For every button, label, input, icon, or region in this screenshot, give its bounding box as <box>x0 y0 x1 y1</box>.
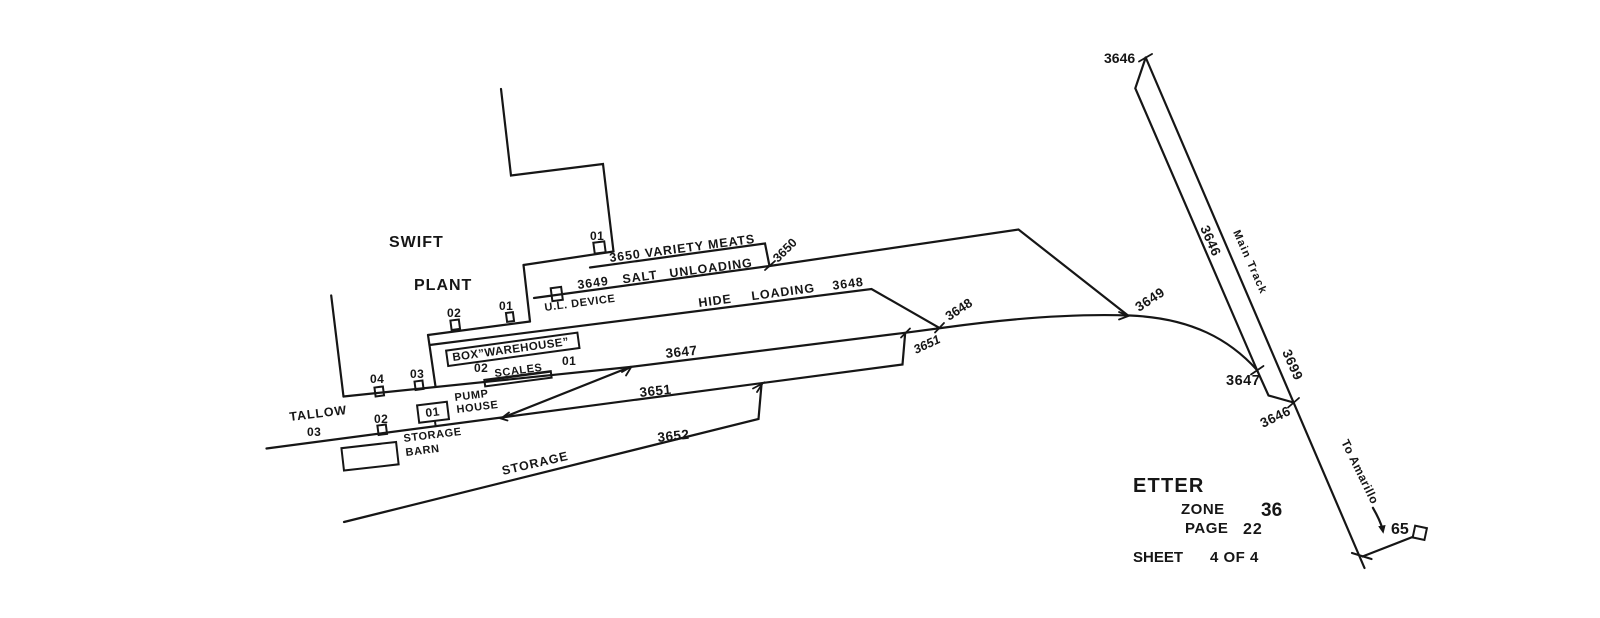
svg-text:01: 01 <box>562 354 576 368</box>
svg-text:36: 36 <box>1261 500 1282 521</box>
svg-text:PLANT: PLANT <box>414 277 472 294</box>
svg-text:4 OF 4: 4 OF 4 <box>1210 549 1259 566</box>
svg-text:01: 01 <box>425 404 441 420</box>
svg-text:02: 02 <box>447 306 461 320</box>
svg-text:22: 22 <box>1243 521 1263 538</box>
svg-text:03: 03 <box>307 425 321 439</box>
svg-text:PAGE: PAGE <box>1185 520 1228 537</box>
svg-text:02: 02 <box>474 361 488 375</box>
svg-text:ZONE: ZONE <box>1181 501 1225 518</box>
svg-text:SHEET: SHEET <box>1133 549 1183 566</box>
svg-text:04: 04 <box>370 372 384 386</box>
svg-text:3647: 3647 <box>1226 373 1260 389</box>
svg-text:65: 65 <box>1391 521 1409 538</box>
svg-text:02: 02 <box>374 412 388 426</box>
svg-text:01: 01 <box>499 299 513 313</box>
svg-text:03: 03 <box>410 367 424 381</box>
svg-text:3646: 3646 <box>1104 50 1135 66</box>
svg-text:ETTER: ETTER <box>1133 475 1205 497</box>
svg-text:01: 01 <box>590 229 604 243</box>
svg-text:SWIFT: SWIFT <box>389 234 444 251</box>
